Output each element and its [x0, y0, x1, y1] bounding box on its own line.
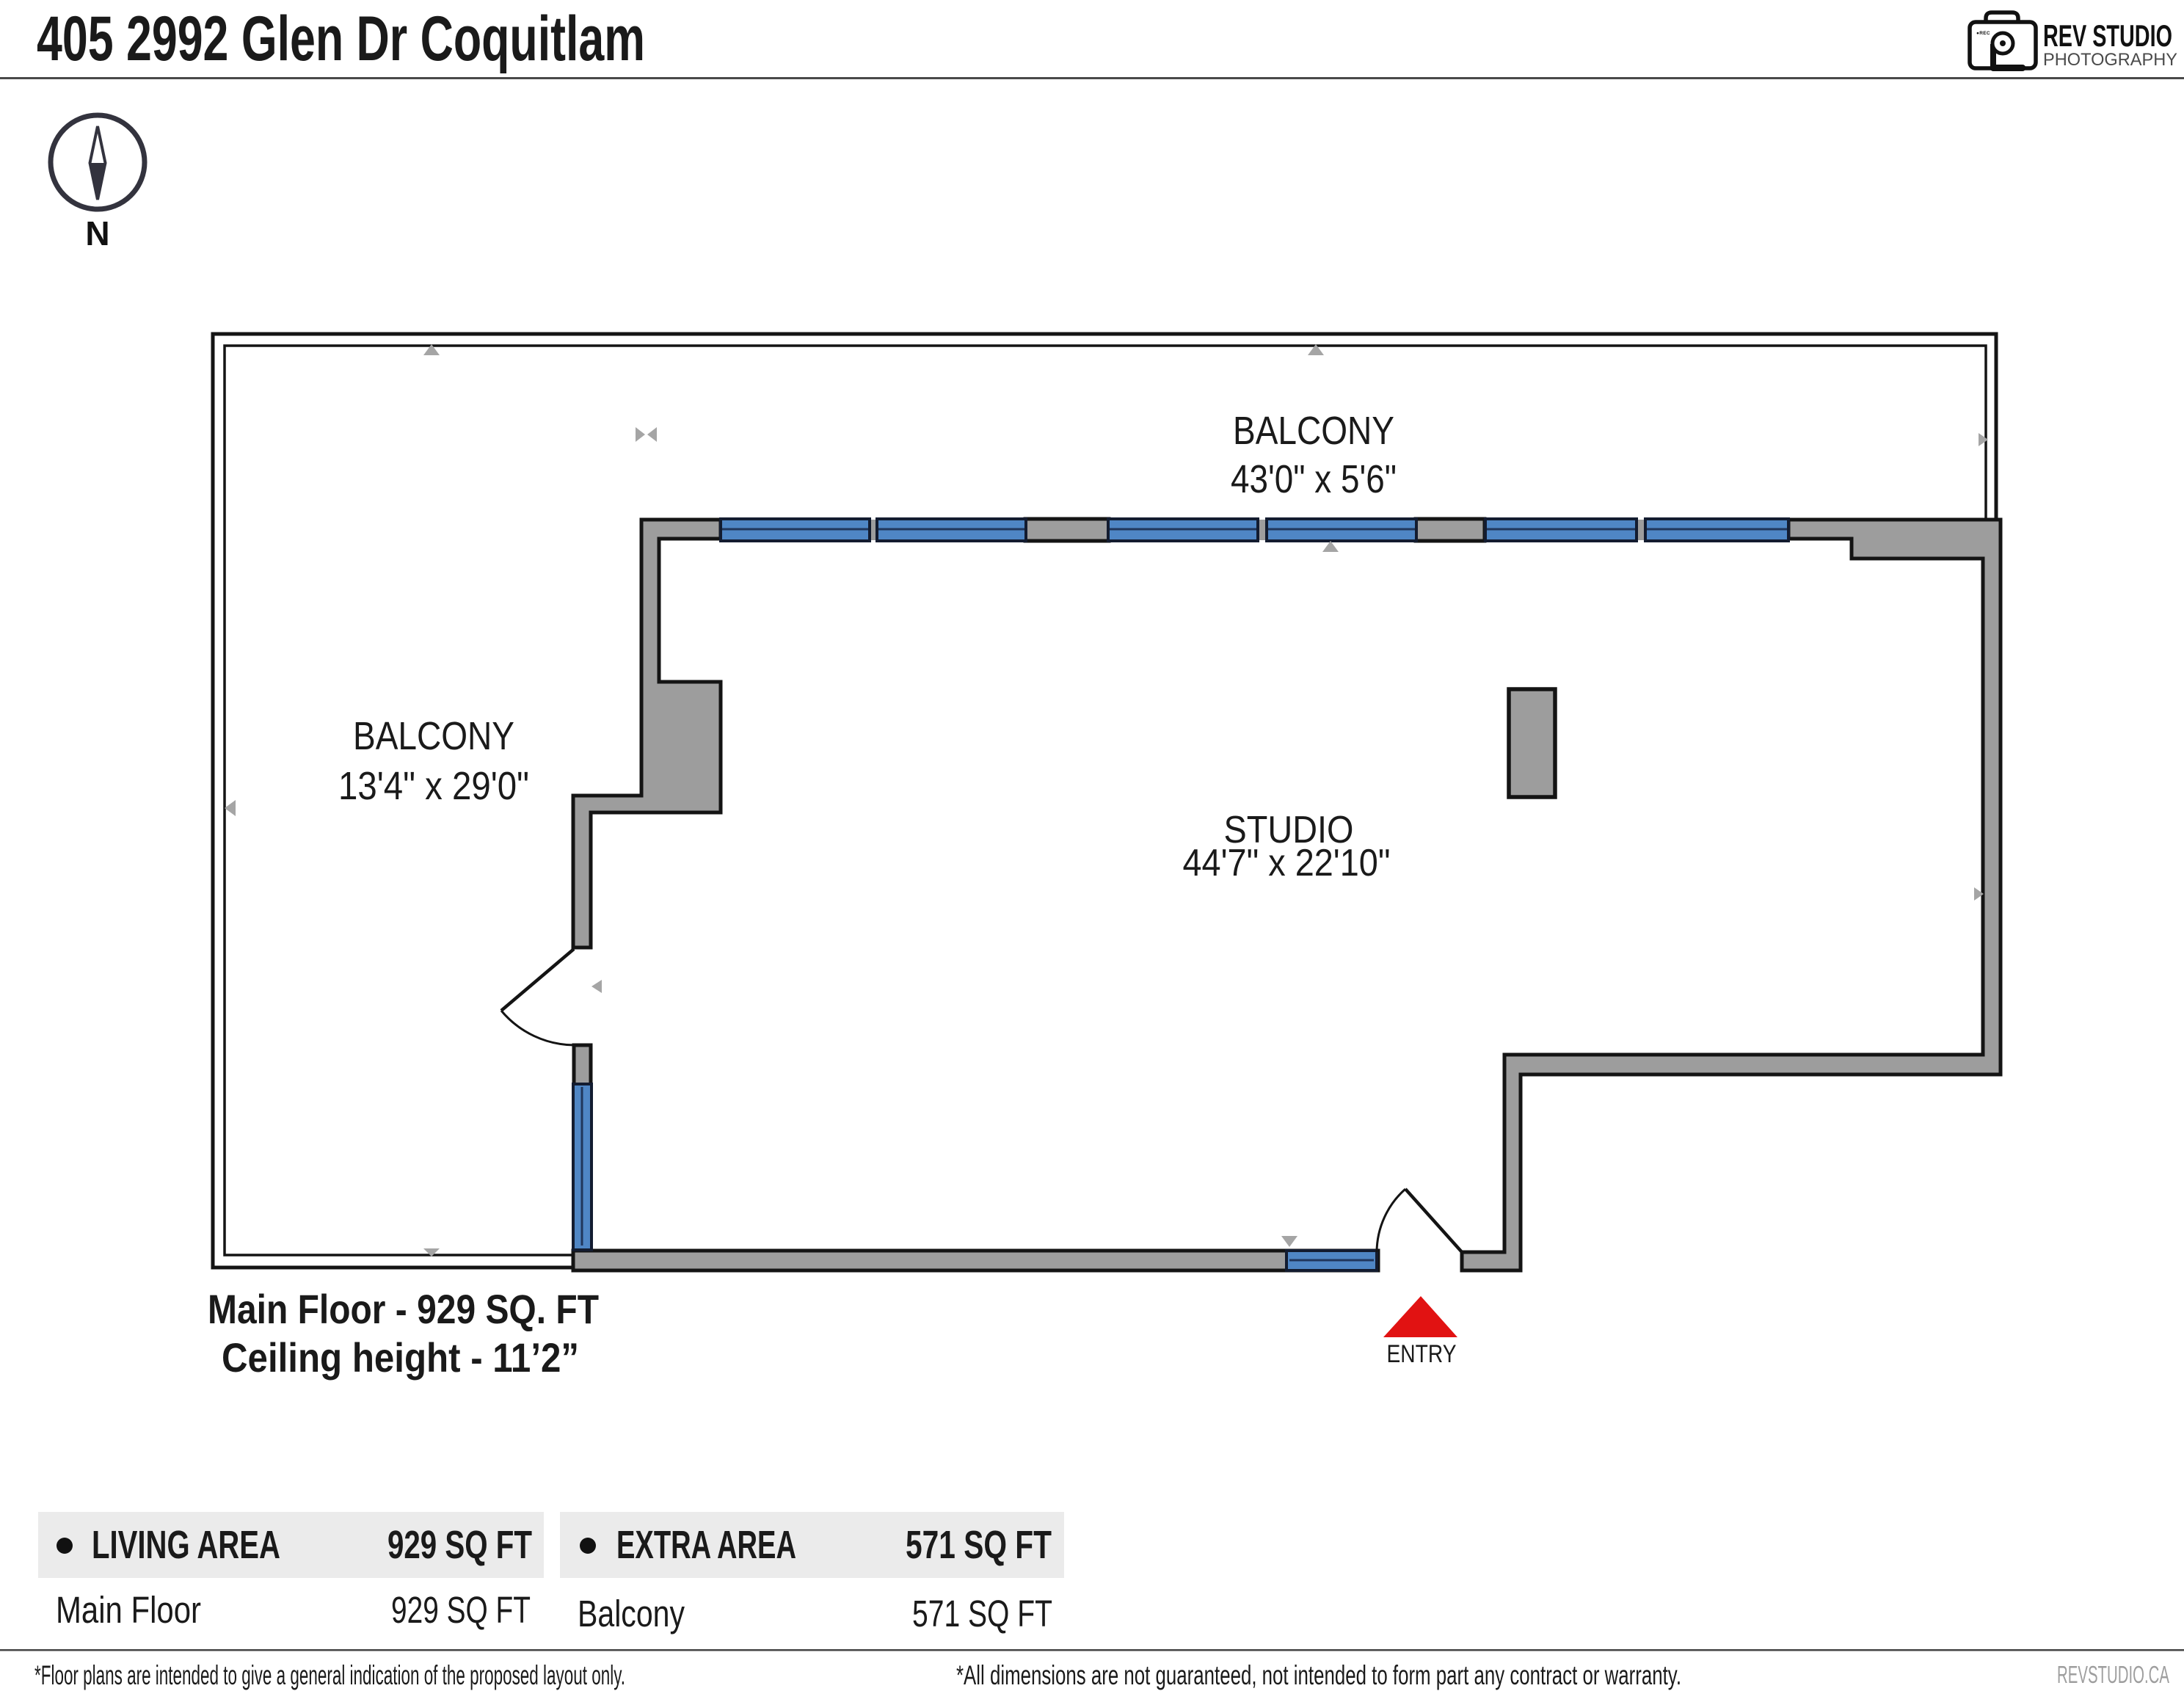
- svg-text:●REC: ●REC: [1976, 31, 1990, 36]
- svg-text:929 SQ FT: 929 SQ FT: [387, 1523, 532, 1567]
- svg-text:Main Floor - 929 SQ. FT: Main Floor - 929 SQ. FT: [208, 1286, 599, 1332]
- svg-text:405 2992 Glen Dr Coquitlam: 405 2992 Glen Dr Coquitlam: [37, 4, 645, 74]
- svg-text:*Floor plans are intended to g: *Floor plans are intended to give a gene…: [34, 1660, 625, 1690]
- svg-text:*All dimensions are not guaran: *All dimensions are not guaranteed, not …: [956, 1660, 1681, 1690]
- svg-text:REVSTUDIO.CA: REVSTUDIO.CA: [2057, 1661, 2169, 1688]
- svg-text:EXTRA AREA: EXTRA AREA: [616, 1523, 796, 1567]
- svg-text:Ceiling height - 11’2”: Ceiling height - 11’2”: [222, 1334, 579, 1381]
- svg-text:13'4" x 29'0": 13'4" x 29'0": [338, 764, 529, 808]
- svg-text:ENTRY: ENTRY: [1387, 1340, 1457, 1368]
- svg-text:LIVING AREA: LIVING AREA: [92, 1523, 280, 1567]
- svg-text:Main Floor: Main Floor: [56, 1589, 201, 1631]
- svg-text:571 SQ FT: 571 SQ FT: [906, 1523, 1052, 1567]
- svg-text:Balcony: Balcony: [578, 1593, 685, 1634]
- svg-text:PHOTOGRAPHY: PHOTOGRAPHY: [2043, 50, 2177, 70]
- svg-text:44'7" x 22'10": 44'7" x 22'10": [1183, 842, 1391, 884]
- svg-text:BALCONY: BALCONY: [1233, 409, 1394, 453]
- svg-text:571 SQ FT: 571 SQ FT: [912, 1593, 1052, 1634]
- svg-text:N: N: [85, 214, 109, 252]
- svg-text:BALCONY: BALCONY: [353, 714, 514, 758]
- svg-text:929 SQ FT: 929 SQ FT: [391, 1589, 531, 1631]
- svg-text:43'0" x 5'6": 43'0" x 5'6": [1231, 457, 1397, 501]
- svg-text:REV STUDIO: REV STUDIO: [2043, 18, 2172, 53]
